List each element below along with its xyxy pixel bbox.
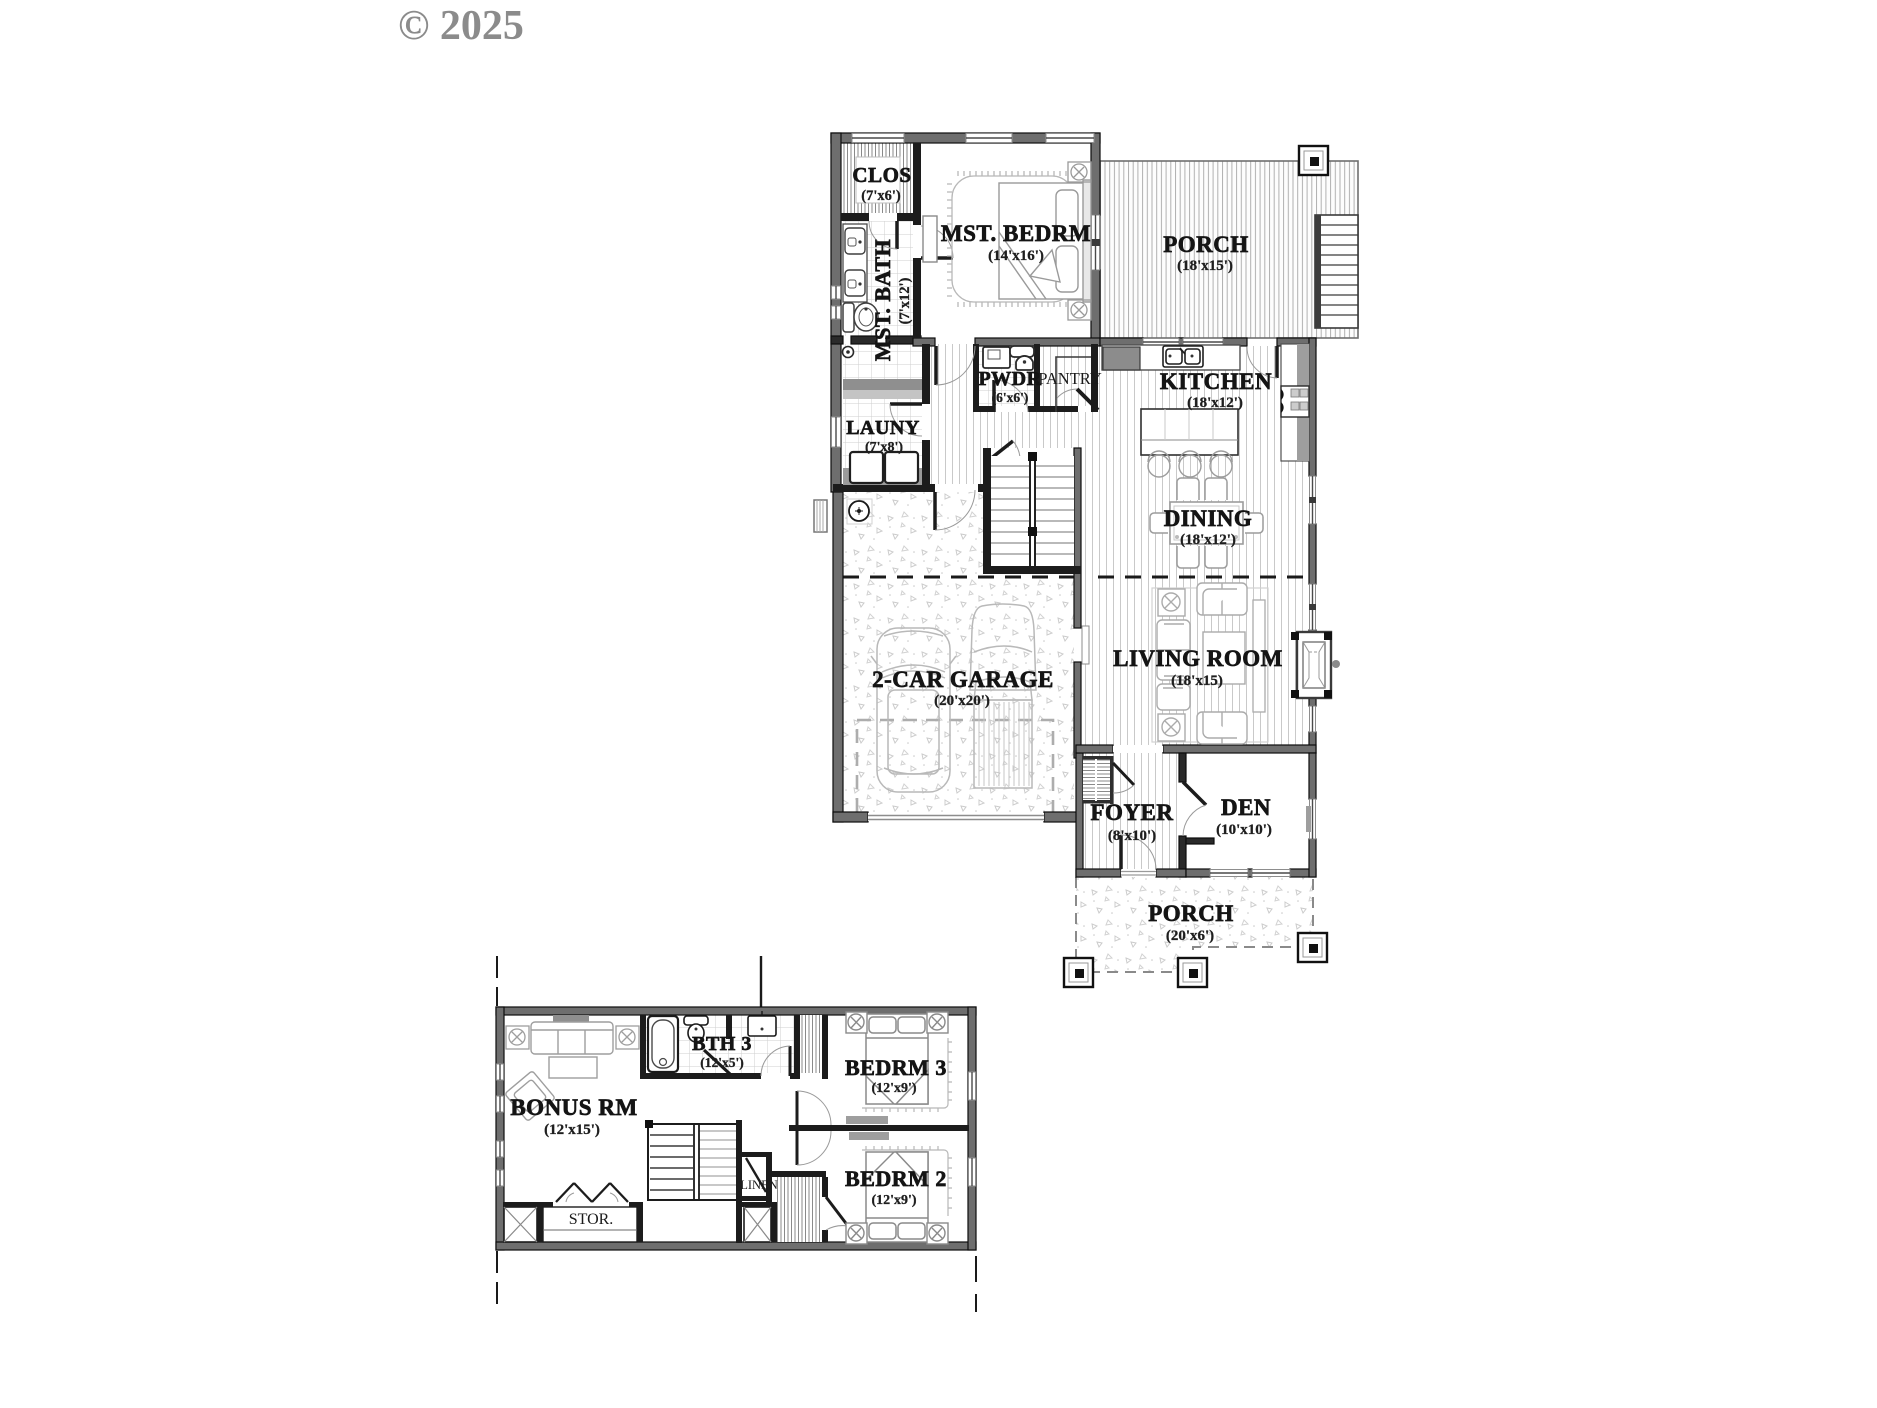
svg-text:LIVING ROOM: LIVING ROOM <box>1113 646 1283 671</box>
svg-text:DEN: DEN <box>1221 795 1271 820</box>
svg-text:(7'x8'): (7'x8') <box>865 440 903 455</box>
svg-text:(12'x15'): (12'x15') <box>544 1122 600 1138</box>
svg-text:(6'x6'): (6'x6') <box>992 390 1029 405</box>
svg-text:(18'x15'): (18'x15') <box>1177 258 1233 274</box>
svg-text:(7'x12'): (7'x12') <box>897 277 913 324</box>
svg-text:MST. BEDRM: MST. BEDRM <box>941 221 1091 246</box>
svg-text:MST. BATH: MST. BATH <box>870 239 895 361</box>
svg-text:(18'x15): (18'x15) <box>1171 673 1223 689</box>
svg-text:© 2025: © 2025 <box>398 3 524 49</box>
svg-text:(12'x5'): (12'x5') <box>700 1055 744 1070</box>
svg-text:(20'x6'): (20'x6') <box>1166 928 1214 944</box>
svg-text:BEDRM 3: BEDRM 3 <box>845 1055 947 1080</box>
svg-text:(14'x16'): (14'x16') <box>988 248 1044 264</box>
svg-text:(8'x10'): (8'x10') <box>1108 828 1156 844</box>
svg-text:(12'x9'): (12'x9') <box>871 1081 916 1096</box>
svg-text:(20'x20'): (20'x20') <box>934 693 990 709</box>
svg-text:(10'x10'): (10'x10') <box>1216 822 1272 838</box>
svg-text:STOR.: STOR. <box>569 1211 614 1228</box>
svg-text:(18'x12'): (18'x12') <box>1180 532 1236 548</box>
svg-text:LAUNY: LAUNY <box>846 417 920 439</box>
svg-text:2-CAR GARAGE: 2-CAR GARAGE <box>872 667 1054 692</box>
svg-text:FOYER: FOYER <box>1091 800 1174 825</box>
svg-text:(7'x6'): (7'x6') <box>861 188 901 204</box>
svg-text:PANTRY: PANTRY <box>1038 369 1102 388</box>
svg-text:BTH 3: BTH 3 <box>692 1033 752 1055</box>
svg-text:DINING: DINING <box>1164 506 1253 531</box>
svg-text:CLOS: CLOS <box>852 163 911 187</box>
svg-text:(18'x12'): (18'x12') <box>1187 395 1243 411</box>
svg-text:(12'x9'): (12'x9') <box>871 1193 916 1208</box>
svg-text:PORCH: PORCH <box>1163 232 1249 257</box>
svg-text:PWDR: PWDR <box>978 368 1041 390</box>
svg-text:BONUS RM: BONUS RM <box>510 1095 637 1120</box>
svg-text:BEDRM 2: BEDRM 2 <box>845 1166 947 1191</box>
svg-text:LINEN: LINEN <box>740 1178 778 1192</box>
svg-text:PORCH: PORCH <box>1148 901 1234 926</box>
svg-text:KITCHEN: KITCHEN <box>1160 369 1272 394</box>
